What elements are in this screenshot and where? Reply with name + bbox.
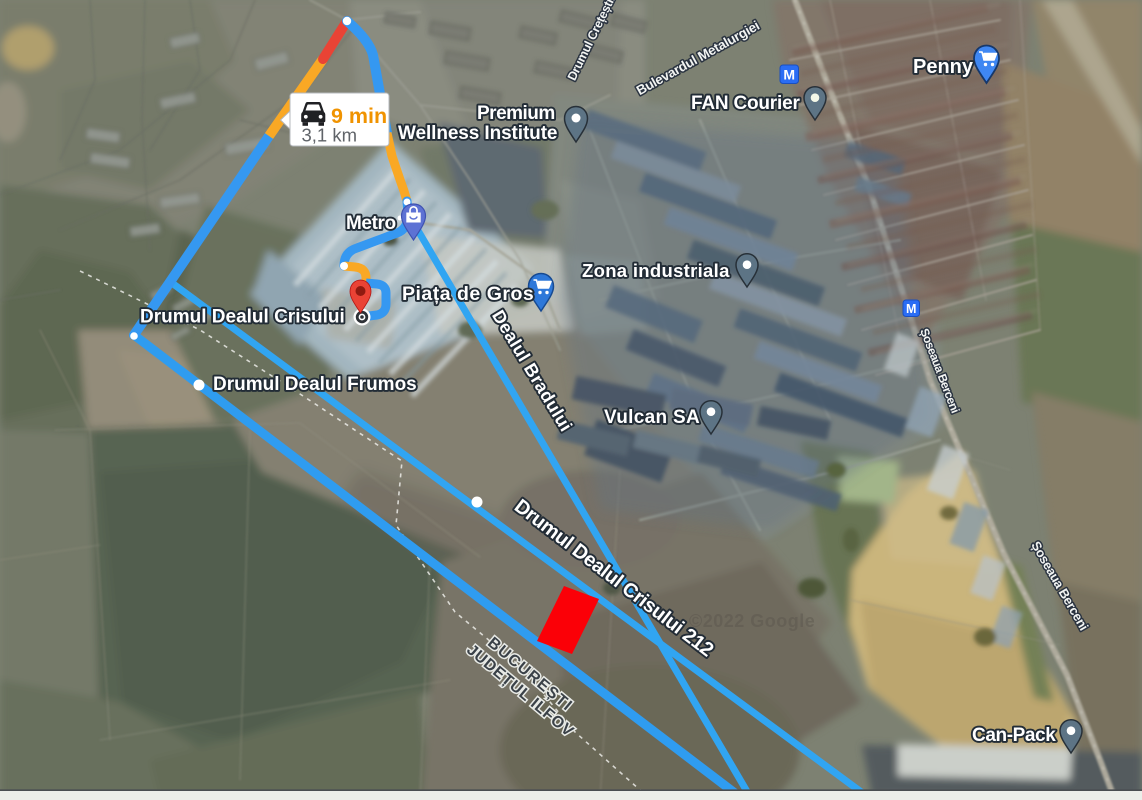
svg-text:M: M <box>906 302 916 316</box>
svg-text:Penny: Penny <box>913 56 974 78</box>
svg-text:Piața de Gros: Piața de Gros <box>402 283 534 305</box>
svg-text:Can-Pack: Can-Pack <box>972 725 1056 746</box>
svg-text:M: M <box>783 67 795 83</box>
svg-text:Zona industriala: Zona industriala <box>582 260 730 281</box>
svg-text:Wellness Institute: Wellness Institute <box>398 123 557 144</box>
svg-text:©2022 Google: ©2022 Google <box>689 611 815 631</box>
svg-text:Metro: Metro <box>346 213 396 234</box>
svg-text:3,1 km: 3,1 km <box>302 125 358 146</box>
svg-text:Vulcan SA: Vulcan SA <box>604 407 700 428</box>
svg-text:Drumul Dealul Crisului: Drumul Dealul Crisului <box>140 307 345 328</box>
svg-text:Premium: Premium <box>477 103 555 124</box>
svg-text:Drumul Dealul Frumos: Drumul Dealul Frumos <box>213 374 417 395</box>
svg-text:FAN Courier: FAN Courier <box>691 93 800 114</box>
